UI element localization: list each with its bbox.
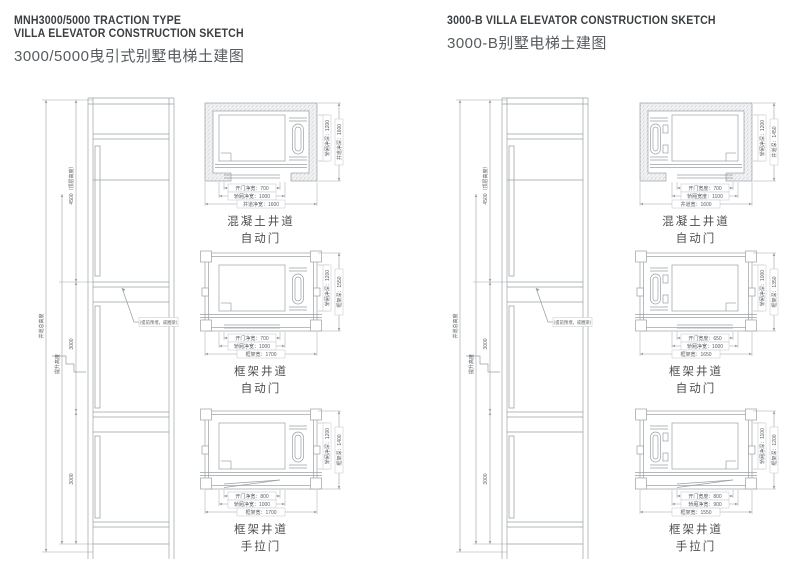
dim-label: 开门宽度：800 [688,493,722,500]
dim-label: 开门净宽：700 [235,185,269,192]
plan-concrete-auto-right: 开门宽度：700轿厢宽度：1100井道宽：1600轿厢净深：1200井道深：14… [634,99,784,248]
title-cn-right: 3000-B别墅电梯土建图 [447,32,739,53]
plan-svg: 开门宽度：650轿厢净宽：1000框架宽：1650轿厢净深：1000框架深：13… [634,249,784,364]
caption-line1: 框架井道 [199,364,323,381]
caption-line1: 框架井道 [199,522,323,539]
dim-label: 井道总高度 [452,313,459,338]
plan-caption: 框架井道 自动门 [199,364,323,398]
caption-line2: 自动门 [634,381,758,398]
dim-label: 轿厢净宽：900 [688,501,722,508]
plan-caption: 框架井道 手拉门 [634,522,758,556]
dim-label: 轿厢净宽：1000 [687,343,723,350]
plan-caption: 框架井道 手拉门 [199,522,323,556]
plan-drawing: 开门净宽：800轿厢净宽：1000框架宽：1700轿厢净深：1200框架深：14… [199,407,349,522]
dim-label: 轿厢净深：1200 [759,120,766,156]
title-en-line1: 3000-B VILLA ELEVATOR CONSTRUCTION SKETC… [447,15,716,28]
dim-label: 轿厢净深：1200 [324,428,331,464]
dim-label: 井道深：1450 [771,126,778,157]
dim-label: （提前预埋，或圈梁） [551,319,594,326]
dim-label: 框架深：1550 [336,276,343,307]
dim-label: 框架宽：1550 [680,509,711,516]
dim-label: 4500（顶层高度） [68,163,75,204]
plan-frame-manual-right: 开门宽度：800轿厢净宽：900框架宽：1550轿厢净深：1100框架深：120… [634,407,784,556]
construction-sketch-sheet: MNH3000/5000 TRACTION TYPE VILLA ELEVATO… [0,0,799,564]
elevation-drawing-left: 井道总高度提升高度4500（顶层高度）30003000（提前预埋，或圈梁） [26,94,181,564]
caption-line1: 框架井道 [634,364,758,381]
caption-line2: 自动门 [199,381,323,398]
plan-svg: 开门宽度：800轿厢净宽：900框架宽：1550轿厢净深：1100框架深：120… [634,407,784,522]
dim-label: 井道总高度 [38,313,45,338]
plan-drawing: 开门净宽：700轿厢净宽：1000井道净宽：1600轿厢净深：1200井道净深：… [199,99,349,214]
elevation-svg: 井道总高度提升高度4500（顶层高度）30003000（提前预埋，或圈梁） [26,94,181,559]
dim-label: 框架宽：1650 [680,351,711,358]
title-en-line2: VILLA ELEVATOR CONSTRUCTION SKETCH [14,28,244,41]
caption-line2: 自动门 [199,231,323,248]
dim-label: 开门宽度：700 [688,185,722,192]
dim-label: 3000 [69,473,75,484]
dim-label: 轿厢净深：1200 [324,270,331,306]
plan-drawing: 开门宽度：650轿厢净宽：1000框架宽：1650轿厢净深：1000框架深：13… [634,249,784,364]
plan-svg: 开门净宽：700轿厢净宽：1000井道净宽：1600轿厢净深：1200井道净深：… [199,99,349,214]
dim-label: 框架宽：1700 [245,351,276,358]
dim-label: 轿厢净深：1200 [324,120,331,156]
title-en-line1: MNH3000/5000 TRACTION TYPE [14,15,244,28]
dim-label: 开门净宽：700 [235,335,269,342]
dim-label: 轿厢净宽：1000 [234,501,270,508]
plan-caption: 混凝土井道 自动门 [634,214,758,248]
dim-label: 提升高度 [468,354,475,374]
elevation-svg: 井道总高度提升高度4500（顶层高度）30003000（提前预埋，或圈梁） [440,94,595,559]
dim-label: 轿厢净宽：1000 [234,343,270,350]
plan-svg: 开门宽度：700轿厢宽度：1100井道宽：1600轿厢净深：1200井道深：14… [634,99,784,214]
caption-line1: 混凝土井道 [199,214,323,231]
plan-drawing: 开门宽度：700轿厢宽度：1100井道宽：1600轿厢净深：1200井道深：14… [634,99,784,214]
dim-label: 井道净深：1600 [336,124,343,160]
plan-frame-auto-right: 开门宽度：650轿厢净宽：1000框架宽：1650轿厢净深：1000框架深：13… [634,249,784,398]
plan-frame-auto-left: 开门净宽：700轿厢净宽：1000框架宽：1700轿厢净深：1200框架深：15… [199,249,349,398]
dim-label: 开门宽度：650 [688,335,722,342]
dim-label: 提升高度 [54,354,61,374]
title-block-right: 3000-B VILLA ELEVATOR CONSTRUCTION SKETC… [447,15,739,53]
dim-label: 开门净宽：800 [235,493,269,500]
dim-label: 井道宽：1600 [680,201,711,208]
dim-label: 4500（顶层高度） [482,163,489,204]
elevation-drawing-right: 井道总高度提升高度4500（顶层高度）30003000（提前预埋，或圈梁） [440,94,595,564]
dim-label: 3000 [69,338,75,349]
dim-label: （提前预埋，或圈梁） [137,319,180,326]
dim-label: 框架深：1350 [771,276,778,307]
caption-line2: 手拉门 [199,539,323,556]
dim-label: 框架深：1400 [336,434,343,465]
plan-caption: 框架井道 自动门 [634,364,758,398]
caption-line2: 手拉门 [634,539,758,556]
dim-label: 3000 [483,473,489,484]
plan-caption: 混凝土井道 自动门 [199,214,323,248]
plan-drawing: 开门净宽：700轿厢净宽：1000框架宽：1700轿厢净深：1200框架深：15… [199,249,349,364]
plan-frame-manual-left: 开门净宽：800轿厢净宽：1000框架宽：1700轿厢净深：1200框架深：14… [199,407,349,556]
title-cn-left: 3000/5000曳引式别墅电梯土建图 [14,45,264,66]
plan-drawing: 开门宽度：800轿厢净宽：900框架宽：1550轿厢净深：1100框架深：120… [634,407,784,522]
dim-label: 框架宽：1700 [245,509,276,516]
caption-line1: 框架井道 [634,522,758,539]
plan-svg: 开门净宽：800轿厢净宽：1000框架宽：1700轿厢净深：1200框架深：14… [199,407,349,522]
dim-label: 轿厢净深：1100 [759,428,766,464]
caption-line2: 自动门 [634,231,758,248]
caption-line1: 混凝土井道 [634,214,758,231]
dim-label: 3000 [483,338,489,349]
plan-svg: 开门净宽：700轿厢净宽：1000框架宽：1700轿厢净深：1200框架深：15… [199,249,349,364]
dim-label: 井道净宽：1600 [243,201,279,208]
plan-concrete-auto-left: 开门净宽：700轿厢净宽：1000井道净宽：1600轿厢净深：1200井道净深：… [199,99,349,248]
dim-label: 轿厢净深：1000 [759,270,766,306]
dim-label: 轿厢宽度：1100 [687,193,723,200]
title-block-left: MNH3000/5000 TRACTION TYPE VILLA ELEVATO… [14,15,264,66]
dim-label: 框架深：1200 [771,434,778,465]
dim-label: 轿厢净宽：1000 [234,193,270,200]
